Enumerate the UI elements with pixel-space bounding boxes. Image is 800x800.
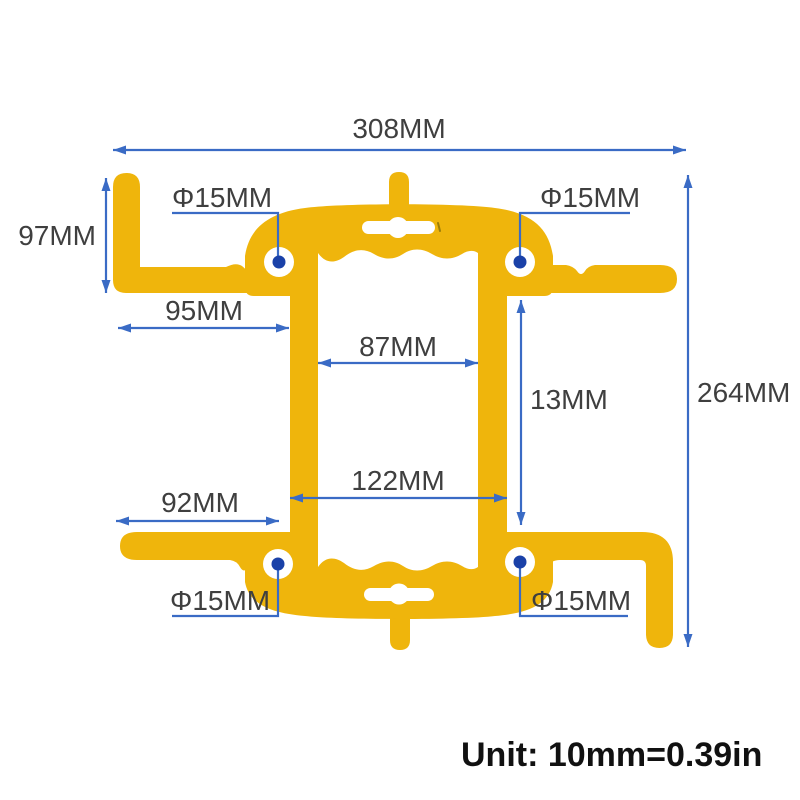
hole-label-bottom-right: Φ15MM [531, 585, 631, 616]
bracket-opening-cutout [318, 250, 478, 571]
dim-lower-left-span: 92MM [116, 487, 279, 526]
diagram-canvas: 308MM 264MM 97MM 95MM 87MM [0, 0, 800, 800]
bracket-bottom-slot-bulge [389, 584, 410, 605]
hole-marker-dot [273, 256, 286, 269]
dim-left-arm-height-label: 97MM [18, 220, 96, 251]
dim-left-arm-height: 97MM [18, 178, 110, 293]
hole-marker-dot [272, 558, 285, 571]
bracket-arm-top-right [540, 265, 677, 293]
hole-label-top-left: Φ15MM [172, 182, 272, 213]
dim-total-width: 308MM [113, 113, 686, 155]
unit-note: Unit: 10mm=0.39in [461, 736, 762, 774]
dim-total-height: 264MM [684, 175, 791, 647]
dim-right-side-span: 13MM [517, 300, 608, 525]
dim-inner-opening-width-label: 87MM [359, 331, 437, 362]
dim-upper-left-span: 95MM [118, 295, 289, 333]
dim-right-side-span-label: 13MM [530, 384, 608, 415]
hole-label-bottom-left: Φ15MM [170, 585, 270, 616]
bracket-top-slot-bulge [388, 217, 409, 238]
dim-lower-left-span-label: 92MM [161, 487, 239, 518]
dim-total-width-label: 308MM [352, 113, 445, 144]
bracket-arm-bottom-left [120, 532, 262, 571]
dim-total-height-label: 264MM [697, 377, 790, 408]
dim-upper-left-span-label: 95MM [165, 295, 243, 326]
dim-frame-outer-width-label: 122MM [351, 465, 444, 496]
hole-label-top-right: Φ15MM [540, 182, 640, 213]
hole-marker-dot [514, 256, 527, 269]
hole-marker-dot [514, 556, 527, 569]
bracket-dimension-diagram: 308MM 264MM 97MM 95MM 87MM [0, 0, 800, 800]
